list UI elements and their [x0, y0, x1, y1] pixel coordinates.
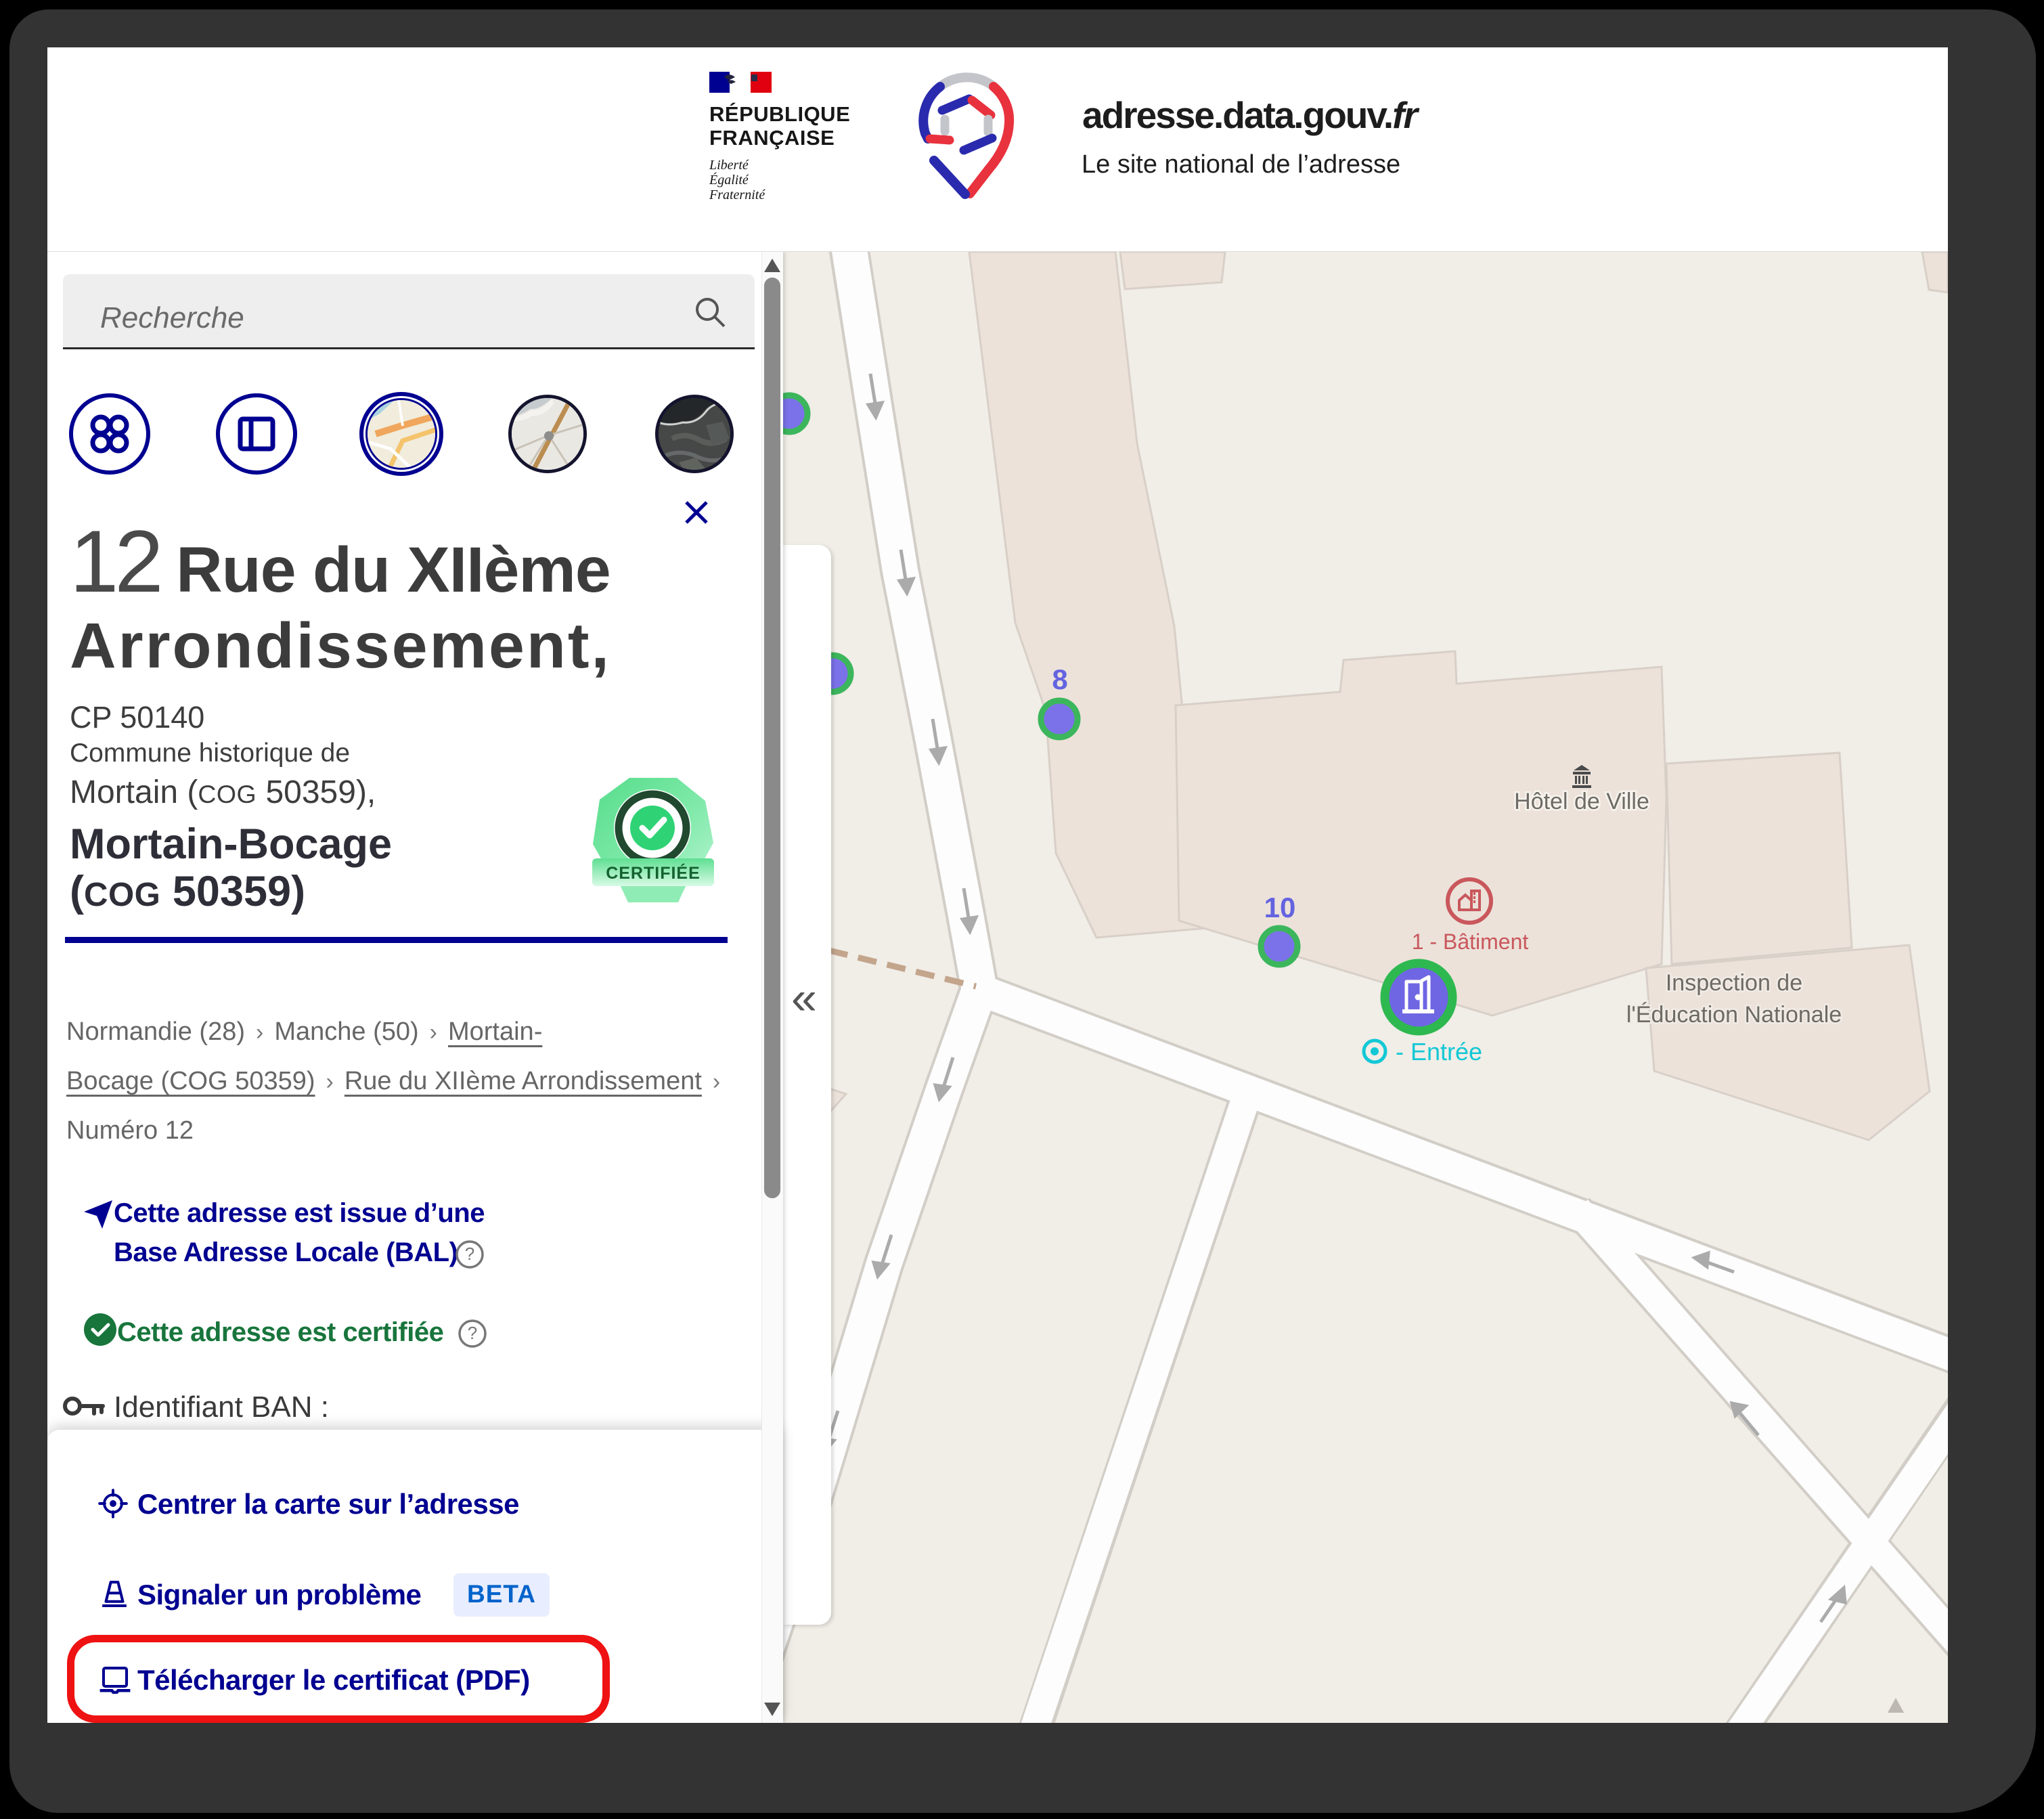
svg-text:8: 8 — [1052, 663, 1067, 695]
svg-text:Inspection de: Inspection de — [1666, 970, 1802, 996]
svg-text:10: 10 — [1264, 892, 1296, 923]
svg-text:?: ? — [465, 1244, 474, 1264]
svg-text:l'Éducation Nationale: l'Éducation Nationale — [1626, 1002, 1842, 1028]
svg-text:- Entrée: - Entrée — [1396, 1038, 1482, 1066]
svg-text:CERTIFIÉE: CERTIFIÉE — [606, 863, 701, 883]
svg-text:?: ? — [468, 1323, 477, 1343]
svg-text:1 - Bâtiment: 1 - Bâtiment — [1412, 929, 1529, 954]
svg-text:Hôtel de Ville: Hôtel de Ville — [1514, 789, 1649, 814]
